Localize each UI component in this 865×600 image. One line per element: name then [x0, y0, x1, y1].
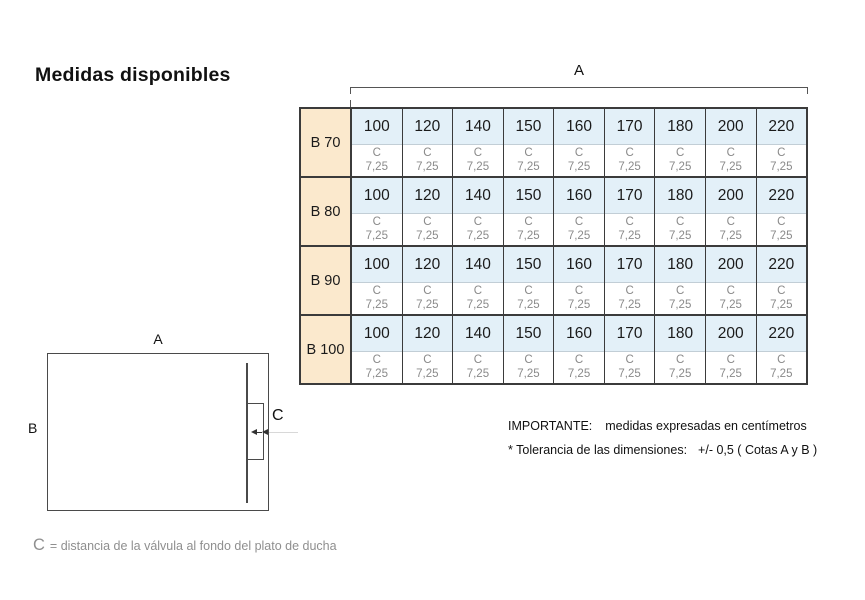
shower-tray-outline [47, 353, 269, 511]
c-dimension-label: C [777, 354, 785, 367]
c-dimension-label: C [373, 216, 381, 229]
c-dimension-value: 7,25 [770, 299, 792, 312]
notes-block: IMPORTANTE: medidas expresadas en centím… [508, 419, 838, 457]
size-value: 100 [352, 316, 402, 352]
c-dimension-label: C [524, 285, 532, 298]
c-dimension: C7,25 [403, 283, 453, 314]
tolerancia-label: * Tolerancia de las dimensiones: [508, 443, 687, 457]
tolerancia-note: * Tolerancia de las dimensiones: +/- 0,5… [508, 443, 838, 457]
c-dimension: C7,25 [453, 214, 503, 245]
c-dimension-label: C [727, 285, 735, 298]
c-dimension: C7,25 [352, 352, 402, 383]
size-value: 160 [554, 178, 604, 214]
size-value: 170 [605, 247, 655, 283]
size-value: 100 [352, 109, 402, 145]
c-dimension: C7,25 [504, 283, 554, 314]
c-dimension: C7,25 [504, 214, 554, 245]
c-dimension-value: 7,25 [669, 161, 691, 174]
row-header: B 80 [301, 178, 352, 245]
c-dimension-value: 7,25 [669, 230, 691, 243]
size-value: 140 [453, 109, 503, 145]
c-dimension: C7,25 [706, 145, 756, 176]
c-dimension-label: C [474, 285, 482, 298]
c-dimension-value: 7,25 [720, 230, 742, 243]
c-dimension-value: 7,25 [366, 161, 388, 174]
c-dimension-label: C [676, 147, 684, 160]
c-dimension-label: C [727, 354, 735, 367]
c-dimension: C7,25 [453, 145, 503, 176]
size-cell: 100C7,25 [352, 247, 402, 314]
c-dimension-label: C [575, 285, 583, 298]
size-cell: 120C7,25 [402, 247, 453, 314]
size-value: 100 [352, 247, 402, 283]
c-dimension-label: C [676, 285, 684, 298]
importante-label: IMPORTANTE: [508, 419, 592, 433]
size-value: 120 [403, 109, 453, 145]
size-value: 180 [655, 316, 705, 352]
diagram-b-label: B [28, 420, 37, 436]
c-dimension-value: 7,25 [467, 161, 489, 174]
c-dimension-label: C [474, 216, 482, 229]
c-dimension-label: C [625, 216, 633, 229]
c-dimension-value: 7,25 [517, 230, 539, 243]
size-value: 160 [554, 109, 604, 145]
c-dimension-label: C [625, 147, 633, 160]
size-cell: 170C7,25 [604, 178, 655, 245]
c-dimension: C7,25 [706, 214, 756, 245]
c-dimension: C7,25 [655, 145, 705, 176]
table-row: B 70100C7,25120C7,25140C7,25150C7,25160C… [301, 109, 806, 176]
size-value: 220 [757, 316, 807, 352]
size-cell: 140C7,25 [452, 109, 503, 176]
c-dimension-label: C [423, 354, 431, 367]
c-dimension-value: 7,25 [467, 368, 489, 381]
c-dimension: C7,25 [352, 283, 402, 314]
size-cell: 170C7,25 [604, 109, 655, 176]
c-dimension: C7,25 [605, 214, 655, 245]
c-dimension: C7,25 [655, 283, 705, 314]
c-symbol: C [33, 536, 45, 555]
size-value: 200 [706, 247, 756, 283]
size-value: 170 [605, 316, 655, 352]
size-cell: 150C7,25 [503, 178, 554, 245]
size-cell: 220C7,25 [756, 247, 807, 314]
c-dimension-label: C [373, 285, 381, 298]
size-value: 220 [757, 247, 807, 283]
size-value: 120 [403, 178, 453, 214]
c-definition-caption: C = distancia de la válvula al fondo del… [33, 536, 337, 555]
c-dimension: C7,25 [706, 352, 756, 383]
size-value: 150 [504, 178, 554, 214]
size-cell: 220C7,25 [756, 316, 807, 383]
c-dimension-label: C [625, 285, 633, 298]
page: Medidas disponibles A B 70100C7,25120C7,… [0, 0, 865, 600]
size-cell: 220C7,25 [756, 178, 807, 245]
table-row: B 80100C7,25120C7,25140C7,25150C7,25160C… [301, 176, 806, 245]
size-cell: 200C7,25 [705, 109, 756, 176]
c-dimension-value: 7,25 [720, 368, 742, 381]
c-dimension-value: 7,25 [517, 368, 539, 381]
size-cell: 120C7,25 [402, 109, 453, 176]
c-dimension: C7,25 [655, 352, 705, 383]
c-dimension-label: C [777, 285, 785, 298]
c-dimension: C7,25 [605, 145, 655, 176]
size-cell: 100C7,25 [352, 178, 402, 245]
c-dimension-extension-line [269, 432, 298, 433]
size-cell: 120C7,25 [402, 316, 453, 383]
size-value: 170 [605, 178, 655, 214]
c-dimension-arrow-icon [262, 429, 268, 435]
size-value: 140 [453, 178, 503, 214]
size-value: 170 [605, 109, 655, 145]
diagram-c-label: C [272, 407, 284, 425]
size-cell: 180C7,25 [654, 316, 705, 383]
row-header: B 100 [301, 316, 352, 383]
c-dimension-label: C [524, 216, 532, 229]
c-dimension: C7,25 [554, 145, 604, 176]
c-dimension-label: C [373, 147, 381, 160]
c-dimension: C7,25 [554, 214, 604, 245]
size-value: 150 [504, 316, 554, 352]
size-cell: 100C7,25 [352, 316, 402, 383]
size-cell: 200C7,25 [705, 247, 756, 314]
c-dimension-value: 7,25 [618, 368, 640, 381]
size-value: 180 [655, 247, 705, 283]
size-cell: 180C7,25 [654, 109, 705, 176]
c-dimension: C7,25 [352, 214, 402, 245]
c-dimension: C7,25 [453, 352, 503, 383]
size-value: 150 [504, 247, 554, 283]
c-dimension: C7,25 [605, 352, 655, 383]
c-dimension: C7,25 [352, 145, 402, 176]
c-dimension: C7,25 [655, 214, 705, 245]
size-cell: 160C7,25 [553, 109, 604, 176]
size-cell: 100C7,25 [352, 109, 402, 176]
c-dimension-label: C [373, 354, 381, 367]
c-dimension-value: 7,25 [720, 299, 742, 312]
c-dimension: C7,25 [605, 283, 655, 314]
c-dimension-value: 7,25 [770, 368, 792, 381]
c-dimension-value: 7,25 [720, 161, 742, 174]
size-value: 200 [706, 316, 756, 352]
size-cell: 150C7,25 [503, 316, 554, 383]
size-value: 140 [453, 247, 503, 283]
c-dimension: C7,25 [504, 145, 554, 176]
c-dimension-value: 7,25 [517, 161, 539, 174]
size-cell: 140C7,25 [452, 247, 503, 314]
c-definition-text: = distancia de la válvula al fondo del p… [50, 539, 337, 553]
c-dimension-value: 7,25 [416, 230, 438, 243]
a-dimension-bracket [350, 87, 808, 94]
c-dimension-value: 7,25 [416, 161, 438, 174]
c-dimension-value: 7,25 [618, 230, 640, 243]
diagram-a-label: A [47, 331, 269, 347]
c-dimension-label: C [474, 147, 482, 160]
c-dimension: C7,25 [504, 352, 554, 383]
c-dimension-value: 7,25 [467, 299, 489, 312]
c-dimension-value: 7,25 [568, 161, 590, 174]
c-dimension-value: 7,25 [618, 161, 640, 174]
c-dimension: C7,25 [403, 352, 453, 383]
size-cell: 120C7,25 [402, 178, 453, 245]
c-dimension-label: C [727, 216, 735, 229]
size-value: 150 [504, 109, 554, 145]
c-dimension-label: C [575, 354, 583, 367]
c-dimension-value: 7,25 [770, 161, 792, 174]
size-value: 200 [706, 109, 756, 145]
size-value: 180 [655, 109, 705, 145]
row-header: B 90 [301, 247, 352, 314]
size-value: 220 [757, 178, 807, 214]
size-cell: 160C7,25 [553, 316, 604, 383]
c-dimension-label: C [575, 216, 583, 229]
c-dimension-value: 7,25 [467, 230, 489, 243]
importante-note: IMPORTANTE: medidas expresadas en centím… [508, 419, 838, 433]
c-dimension-value: 7,25 [568, 368, 590, 381]
c-dimension-label: C [777, 147, 785, 160]
c-dimension-value: 7,25 [618, 299, 640, 312]
c-dimension-value: 7,25 [517, 299, 539, 312]
c-dimension: C7,25 [403, 145, 453, 176]
table-a-dimension-label: A [350, 62, 808, 79]
row-header: B 70 [301, 109, 352, 176]
c-dimension-label: C [777, 216, 785, 229]
c-dimension-label: C [474, 354, 482, 367]
size-value: 220 [757, 109, 807, 145]
size-cell: 180C7,25 [654, 247, 705, 314]
c-dimension-value: 7,25 [770, 230, 792, 243]
c-dimension: C7,25 [757, 214, 807, 245]
c-dimension: C7,25 [453, 283, 503, 314]
c-dimension-value: 7,25 [416, 368, 438, 381]
c-dimension-label: C [575, 147, 583, 160]
c-dimension-value: 7,25 [568, 230, 590, 243]
c-dimension-label: C [524, 354, 532, 367]
table-row: B 100100C7,25120C7,25140C7,25150C7,25160… [301, 314, 806, 383]
c-dimension-value: 7,25 [366, 230, 388, 243]
size-cell: 140C7,25 [452, 316, 503, 383]
sizes-table: B 70100C7,25120C7,25140C7,25150C7,25160C… [299, 107, 808, 385]
size-value: 140 [453, 316, 503, 352]
c-dimension-value: 7,25 [568, 299, 590, 312]
size-cell: 160C7,25 [553, 178, 604, 245]
c-dimension-label: C [423, 216, 431, 229]
importante-text: medidas expresadas en centímetros [605, 419, 807, 433]
c-dimension-value: 7,25 [416, 299, 438, 312]
page-title: Medidas disponibles [35, 64, 231, 87]
c-dimension: C7,25 [554, 283, 604, 314]
size-cell: 150C7,25 [503, 109, 554, 176]
size-value: 180 [655, 178, 705, 214]
c-dimension-label: C [676, 354, 684, 367]
size-value: 200 [706, 178, 756, 214]
c-dimension-label: C [423, 285, 431, 298]
c-dimension-value: 7,25 [366, 368, 388, 381]
tolerancia-value: +/- 0,5 ( Cotas A y B ) [698, 443, 817, 457]
size-cell: 150C7,25 [503, 247, 554, 314]
c-dimension: C7,25 [757, 283, 807, 314]
c-dimension: C7,25 [757, 145, 807, 176]
size-value: 120 [403, 316, 453, 352]
size-value: 100 [352, 178, 402, 214]
c-dimension-value: 7,25 [669, 368, 691, 381]
table-row: B 90100C7,25120C7,25140C7,25150C7,25160C… [301, 245, 806, 314]
size-cell: 200C7,25 [705, 316, 756, 383]
c-dimension-value: 7,25 [366, 299, 388, 312]
c-dimension-label: C [625, 354, 633, 367]
size-cell: 170C7,25 [604, 247, 655, 314]
c-dimension-label: C [423, 147, 431, 160]
c-dimension-label: C [524, 147, 532, 160]
c-dimension: C7,25 [554, 352, 604, 383]
size-cell: 160C7,25 [553, 247, 604, 314]
c-dimension-value: 7,25 [669, 299, 691, 312]
size-cell: 140C7,25 [452, 178, 503, 245]
size-cell: 220C7,25 [756, 109, 807, 176]
size-cell: 180C7,25 [654, 178, 705, 245]
size-value: 160 [554, 316, 604, 352]
c-dimension: C7,25 [403, 214, 453, 245]
size-value: 160 [554, 247, 604, 283]
size-value: 120 [403, 247, 453, 283]
c-dimension: C7,25 [757, 352, 807, 383]
c-dimension-label: C [727, 147, 735, 160]
c-dimension-label: C [676, 216, 684, 229]
c-dimension: C7,25 [706, 283, 756, 314]
size-cell: 170C7,25 [604, 316, 655, 383]
size-cell: 200C7,25 [705, 178, 756, 245]
